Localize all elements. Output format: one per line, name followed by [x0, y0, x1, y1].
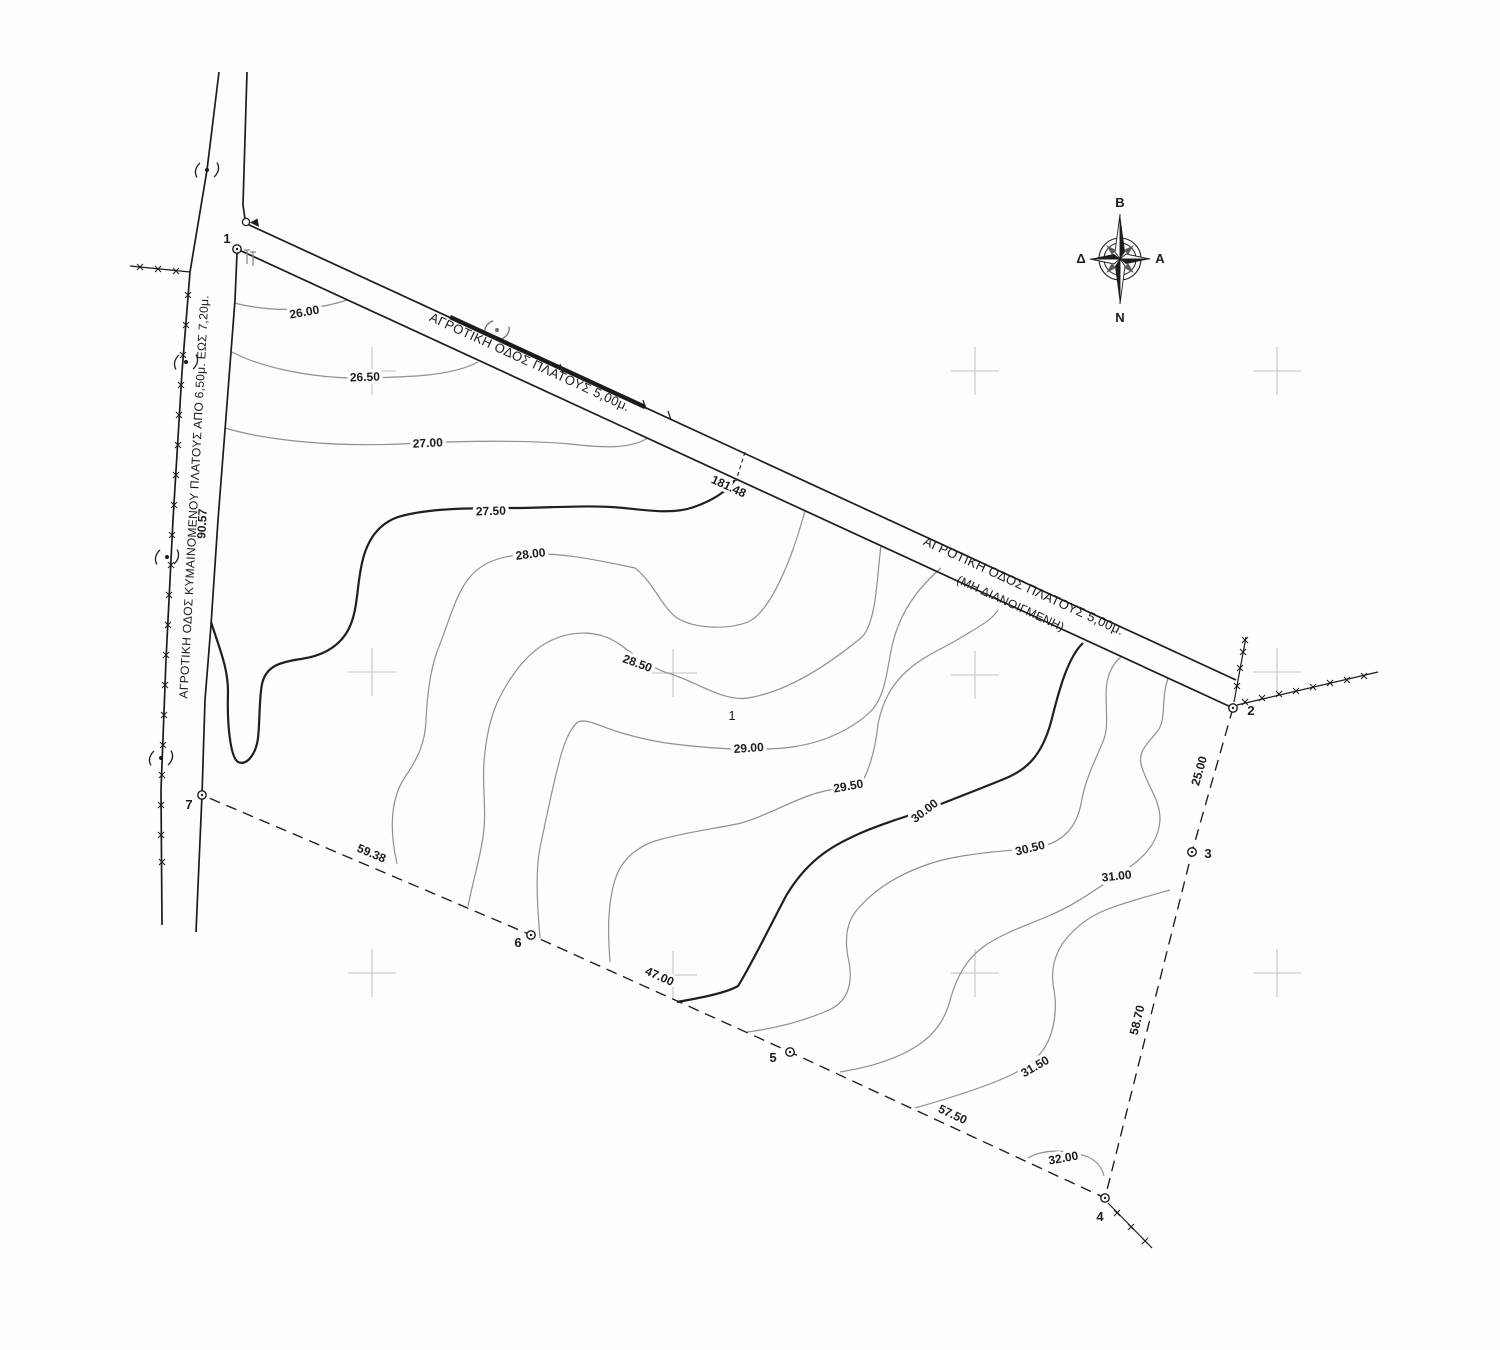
point-label-6: 6 [514, 935, 521, 950]
compass-north-point-half [1115, 214, 1120, 259]
contour-labels: 26.00 26.50 27.00 27.50 28.00 28.50 29.0… [288, 303, 1132, 1168]
compass-south-point [1115, 259, 1120, 304]
boundary-point-6 [527, 931, 535, 939]
fences [130, 264, 1378, 1248]
farm-road-south-edge [237, 249, 1233, 708]
boundary-point-7 [198, 791, 206, 799]
compass-rose: B N A Δ [1076, 195, 1165, 325]
contour-label-28-00: 28.00 [515, 545, 547, 563]
parcel-boundary-dashed [202, 708, 1233, 1198]
dim-label-4-5: 57.50 [936, 1102, 969, 1127]
boundary-point-3 [1188, 848, 1196, 856]
marker-circle [242, 218, 249, 225]
west-road-east-edge-upper [243, 72, 247, 219]
contour-28-50 [468, 546, 881, 906]
fence-line-point2-up [1234, 637, 1246, 702]
compass-nw-point [1106, 245, 1116, 255]
dim-label-3-4: 58.70 [1127, 1003, 1148, 1036]
fence-x-marks-point4 [1114, 1210, 1148, 1244]
contour-30-50 [747, 657, 1121, 1032]
survey-sheet: 1 2 3 4 5 6 7 1 181.48 25.00 58.70 57.50… [0, 0, 1500, 1350]
contour-label-26-00: 26.00 [288, 303, 320, 322]
compass-se-point [1124, 263, 1134, 273]
compass-ne-point [1124, 245, 1134, 255]
fence-line-east [1237, 672, 1378, 705]
point-labels: 1 2 3 4 5 6 7 [185, 231, 1254, 1224]
road-labels: ΑΓΡΟΤΙΚΗ ΟΔΟΣ ΠΛΑΤΟΥΣ 5,00μ. ΑΓΡΟΤΙΚΗ ΟΔ… [176, 295, 1126, 699]
point-label-2: 2 [1247, 703, 1254, 718]
contour-label-31-50: 31.50 [1018, 1053, 1051, 1080]
compass-north-label: B [1115, 195, 1124, 210]
contour-label-27-00: 27.00 [412, 435, 443, 451]
station-tick-181 [736, 452, 745, 481]
dimension-labels: 181.48 25.00 58.70 57.50 47.00 59.38 90.… [194, 472, 1210, 1127]
point-label-5: 5 [769, 1050, 776, 1065]
survey-drawing: 1 2 3 4 5 6 7 1 181.48 25.00 58.70 57.50… [0, 0, 1500, 1350]
point-label-4: 4 [1096, 1209, 1104, 1224]
contour-label-29-00: 29.00 [733, 740, 764, 756]
point-label-7: 7 [185, 797, 192, 812]
contour-28-00 [392, 511, 805, 864]
point-label-1: 1 [223, 231, 230, 246]
farm-road-north-label: ΑΓΡΟΤΙΚΗ ΟΔΟΣ ΠΛΑΤΟΥΣ 5,00μ. [427, 310, 632, 415]
contour-label-30-50: 30.50 [1014, 838, 1047, 859]
contour-label-28-50: 28.50 [621, 652, 654, 676]
contour-label-31-00: 31.00 [1101, 867, 1133, 884]
contour-label-26-50: 26.50 [350, 369, 381, 384]
compass-east-label: A [1155, 251, 1165, 266]
contour-label-30-00: 30.00 [908, 796, 941, 826]
contour-label-27-50: 27.50 [476, 503, 507, 518]
boundary-point-2 [1229, 704, 1237, 712]
contour-label-29-50: 29.50 [832, 777, 864, 796]
dim-label-2-3: 25.00 [1188, 754, 1210, 787]
contour-27-50 [211, 480, 735, 763]
boundary-point-5 [786, 1048, 794, 1056]
boundary-point-1 [233, 245, 241, 253]
compass-sw-point [1106, 263, 1116, 273]
boundary-point-4 [1101, 1194, 1109, 1202]
compass-west-label: Δ [1076, 251, 1085, 266]
compass-south-label: N [1115, 310, 1124, 325]
utility-pole-icon [148, 748, 174, 767]
utility-pole-icon [154, 547, 180, 566]
point-label-3: 3 [1204, 846, 1211, 861]
dim-label-5-6: 47.00 [643, 964, 676, 989]
compass-north-point [1120, 214, 1125, 259]
contour-29-50 [609, 610, 998, 962]
compass-south-point-half [1120, 259, 1125, 304]
west-road-label: ΑΓΡΟΤΙΚΗ ΟΔΟΣ ΚΥΜΑΙΝΟΜΕΝΟΥ ΠΛΑΤΟΥΣ ΑΠΟ 6… [176, 295, 211, 699]
boundary-points [198, 245, 1237, 1202]
roads [161, 72, 1236, 932]
parcel-number: 1 [728, 708, 735, 723]
farm-road-east-label-line1: ΑΓΡΟΤΙΚΗ ΟΔΟΣ ΠΛΑΤΟΥΣ 5,00μ. [921, 534, 1126, 639]
compass-cardinal-points [1090, 214, 1150, 304]
contour-31-50 [915, 890, 1170, 1108]
